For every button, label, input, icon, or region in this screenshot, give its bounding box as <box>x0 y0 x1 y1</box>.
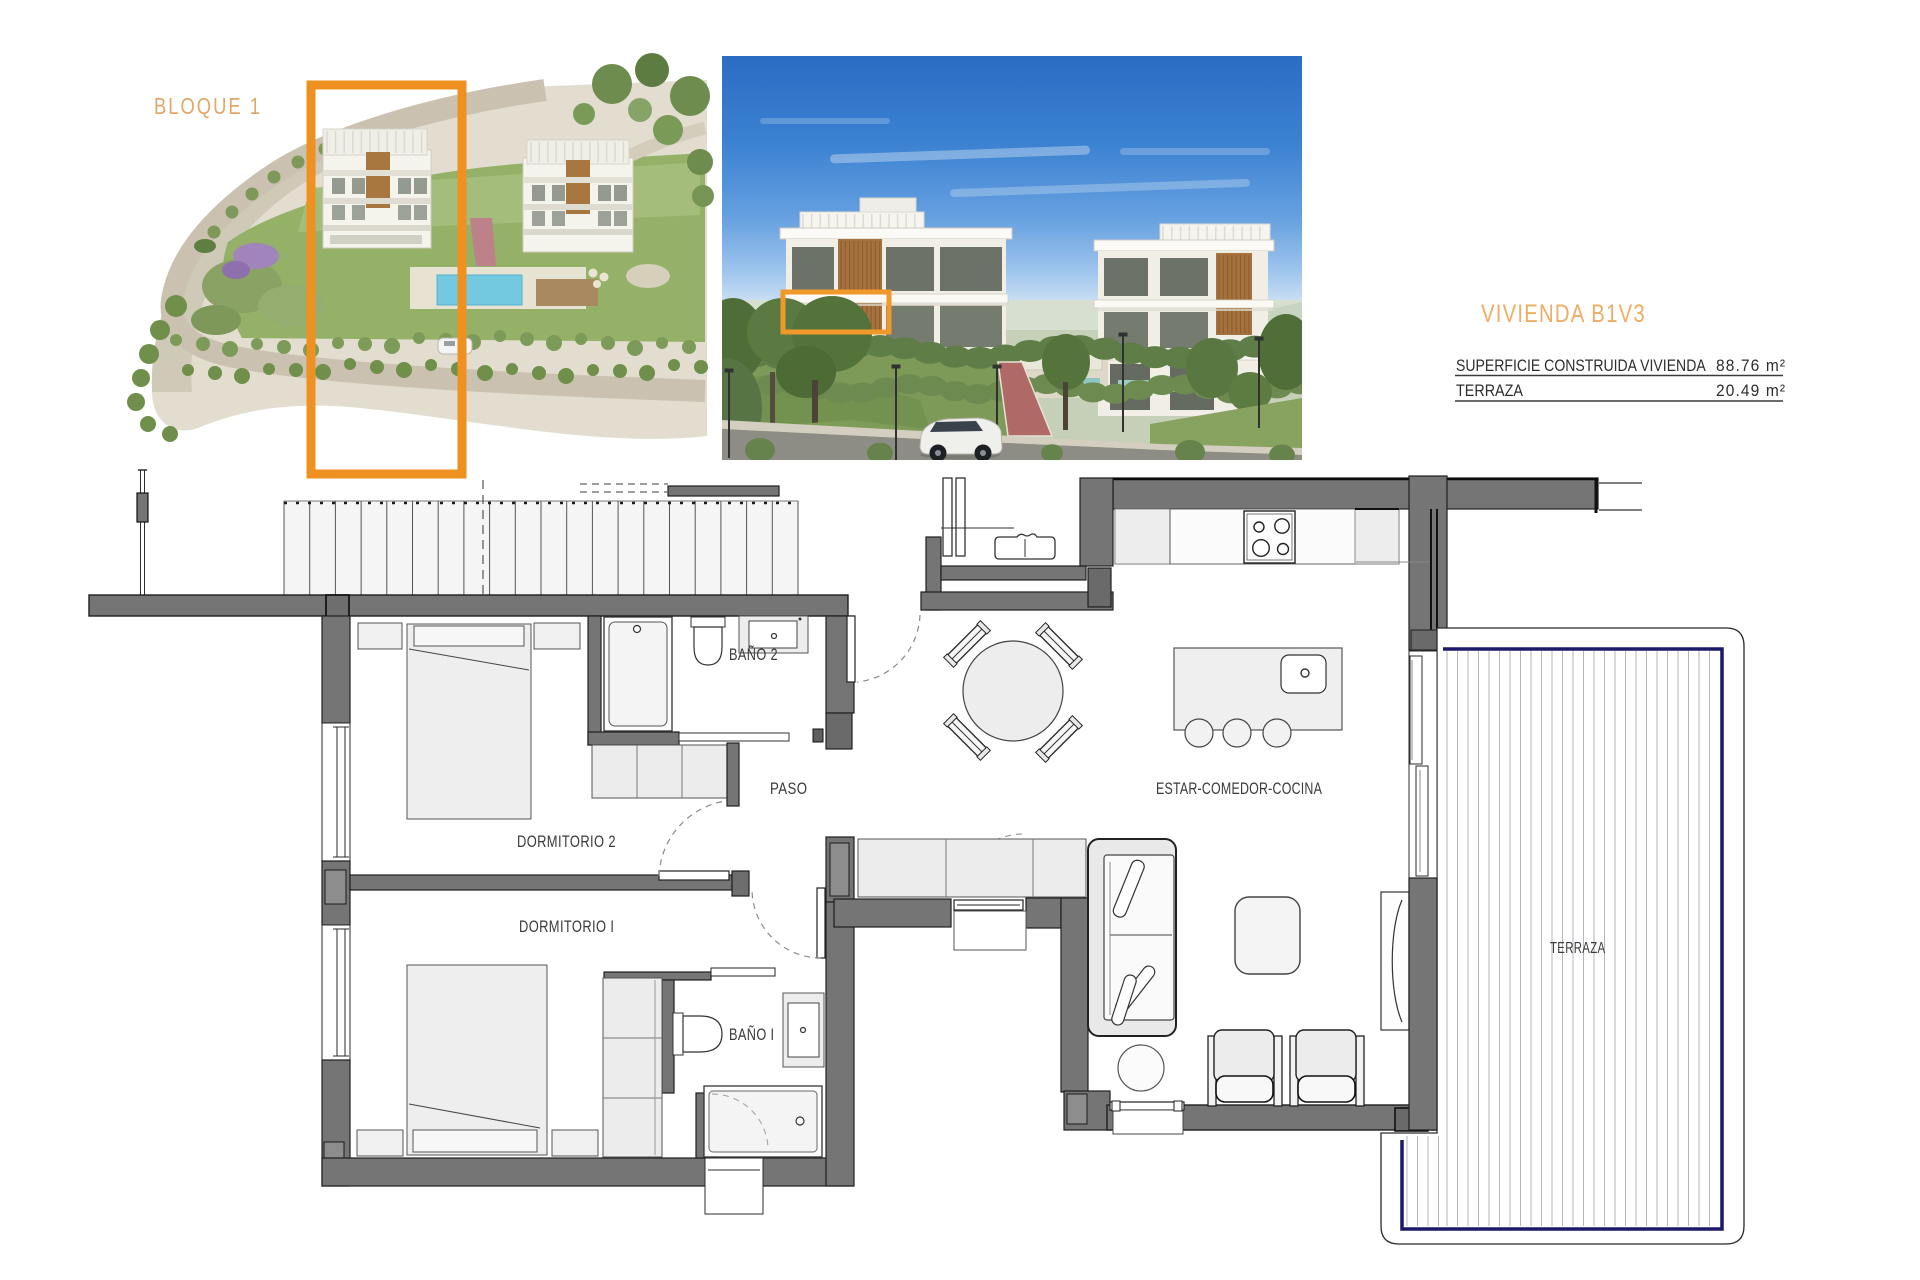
svg-text:SUPERFICIE CONSTRUIDA VIVIENDA: SUPERFICIE CONSTRUIDA VIVIENDA <box>1456 357 1706 375</box>
svg-text:88.76 m²: 88.76 m² <box>1716 358 1786 376</box>
svg-text:VIVIENDA B1V3: VIVIENDA B1V3 <box>1481 299 1646 328</box>
svg-text:PASO: PASO <box>770 780 807 799</box>
svg-text:BAÑO I: BAÑO I <box>729 1025 774 1044</box>
svg-text:ESTAR-COMEDOR-COCINA: ESTAR-COMEDOR-COCINA <box>1156 780 1322 798</box>
svg-text:DORMITORIO 2: DORMITORIO 2 <box>517 832 616 851</box>
svg-text:20.49 m²: 20.49 m² <box>1716 383 1786 401</box>
svg-text:BLOQUE 1: BLOQUE 1 <box>154 94 262 119</box>
svg-text:BAÑO 2: BAÑO 2 <box>729 645 778 664</box>
svg-text:DORMITORIO I: DORMITORIO I <box>519 917 614 936</box>
svg-text:TERRAZA: TERRAZA <box>1456 382 1524 400</box>
svg-text:TERRAZA: TERRAZA <box>1550 938 1606 956</box>
